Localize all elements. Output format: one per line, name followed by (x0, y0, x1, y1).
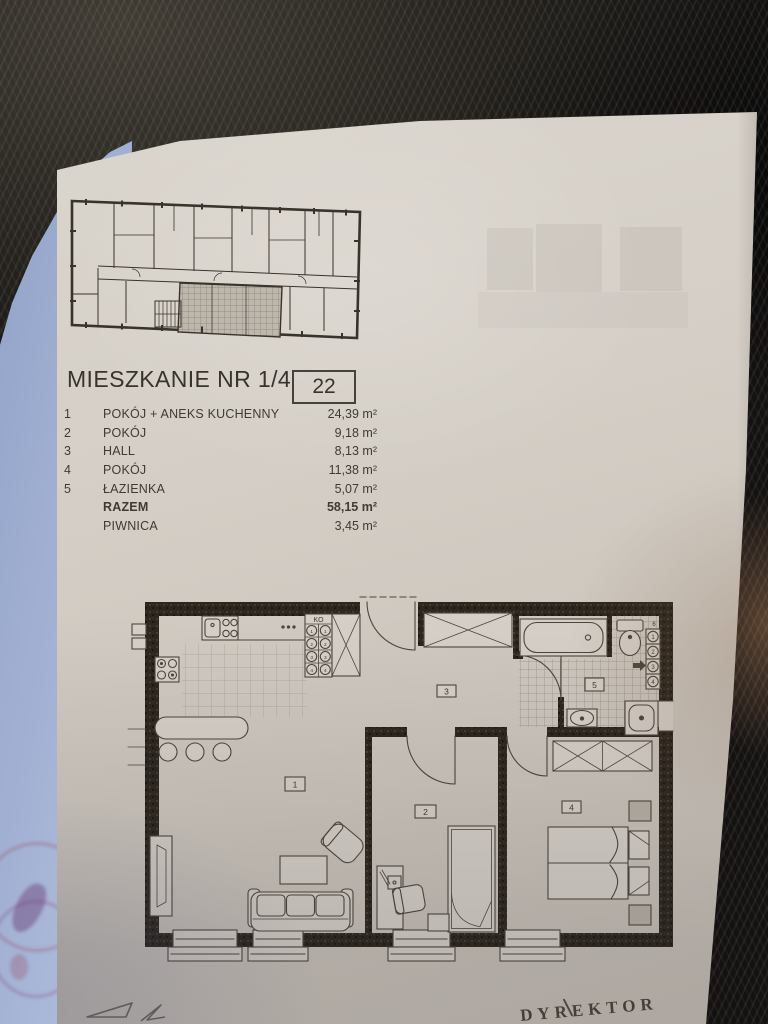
ghost-bleed (487, 228, 533, 290)
bathtub-icon (520, 619, 607, 656)
tall-wardrobe-icon (332, 614, 360, 676)
side-table-icon (428, 914, 449, 931)
coffee-table-icon (280, 856, 327, 884)
room4-door (507, 736, 547, 776)
svg-text:1: 1 (310, 629, 313, 635)
room-label-3: 3 (444, 687, 449, 697)
ghost-bleed (620, 227, 682, 291)
room-area: 24,39 m² (328, 407, 377, 421)
room-label-5: 5 (592, 680, 597, 690)
bar-stools (159, 743, 231, 761)
room-area: 5,07 m² (335, 482, 377, 496)
kitchen-counter (238, 616, 307, 640)
photo-background: MIESZKANIE NR 1/4 22 1 POKÓJ + ANEKS KUC… (0, 0, 768, 1024)
unit-number: 22 (312, 375, 335, 399)
room-label-4: 4 (569, 803, 574, 813)
row-number: 1 (64, 407, 103, 421)
total-area: 58,15 m² (327, 500, 377, 514)
ghost-bleed (536, 224, 602, 292)
total-label: RAZEM (103, 500, 327, 514)
page-title: MIESZKANIE NR 1/4 (67, 366, 291, 393)
entrance-door (360, 597, 418, 650)
sofa-icon (248, 889, 353, 931)
room2-door (407, 736, 455, 784)
room-table: 1 POKÓJ + ANEKS KUCHENNY 24,39 m² 2 POKÓ… (64, 405, 377, 535)
unit-number-box: 22 (292, 370, 356, 404)
room4-wardrobe-icon (553, 741, 652, 771)
building-overview-plan (62, 191, 372, 349)
room-label-2: 2 (423, 807, 428, 817)
right-wall-opening (659, 701, 673, 731)
room-area: 11,38 m² (329, 463, 377, 477)
basement-label: PIWNICA (103, 519, 335, 533)
apartment-floor-plan: KO 1 1 2 2 3 3 4 4 6 1 2 3 4 1 2 3 4 5 (120, 589, 680, 987)
table-row-basement: PIWNICA 3,45 m² (64, 517, 377, 536)
staircase-icon (155, 301, 181, 327)
wall-vent-icon (132, 624, 146, 649)
kitchen-sink-icon (202, 616, 238, 640)
washing-machine-icon (625, 701, 658, 735)
svg-text:3: 3 (310, 655, 313, 661)
table-row: 4 POKÓJ 11,38 m² (64, 461, 377, 480)
ko-label: KO (313, 617, 324, 624)
hall-wardrobe-icon (424, 613, 512, 647)
svg-text:3: 3 (324, 655, 327, 661)
row-number: 5 (64, 482, 103, 496)
table-row: 3 HALL 8,13 m² (64, 442, 377, 461)
nightstand-icon (629, 905, 651, 925)
unit-dividers (114, 203, 333, 276)
stove-icon (155, 657, 179, 682)
row-number: 3 (64, 444, 103, 458)
table-row: 2 POKÓJ 9,18 m² (64, 424, 377, 443)
room-name: HALL (103, 444, 335, 458)
svg-text:4: 4 (310, 668, 313, 674)
row-number: 4 (64, 463, 103, 477)
svg-text:2: 2 (310, 642, 313, 648)
row-number: 2 (64, 426, 103, 440)
svg-text:4: 4 (324, 668, 327, 674)
highlighted-apartment (178, 283, 282, 337)
svg-text:1: 1 (324, 629, 327, 635)
svg-text:2: 2 (324, 642, 327, 648)
table-row: 5 ŁAZIENKA 5,07 m² (64, 479, 377, 498)
table-row-total: RAZEM 58,15 m² (64, 498, 377, 517)
toilet-icon (617, 620, 643, 656)
room-name: ŁAZIENKA (103, 482, 335, 496)
washbasin-icon (567, 709, 597, 727)
kitchen-floor-tiles (182, 644, 307, 717)
room-name: POKÓJ + ANEKS KUCHENNY (103, 407, 328, 421)
handwritten-mark (75, 995, 205, 1024)
double-bed-icon (548, 801, 651, 925)
tv-cabinet-icon (150, 836, 172, 916)
kitchen-island (155, 717, 248, 739)
stamp-blot (10, 954, 28, 980)
chair-icon (392, 884, 426, 915)
ghost-bleed (478, 292, 688, 328)
basement-area: 3,45 m² (335, 519, 377, 533)
room-name: POKÓJ (103, 426, 335, 440)
single-bed-icon (448, 826, 495, 932)
table-row: 1 POKÓJ + ANEKS KUCHENNY 24,39 m² (64, 405, 377, 424)
room-name: POKÓJ (103, 463, 329, 477)
room-area: 8,13 m² (335, 444, 377, 458)
dimension-ticks (128, 729, 145, 765)
room-label-1: 1 (293, 780, 298, 790)
room-area: 9,18 m² (335, 426, 377, 440)
nightstand-icon (629, 801, 651, 821)
